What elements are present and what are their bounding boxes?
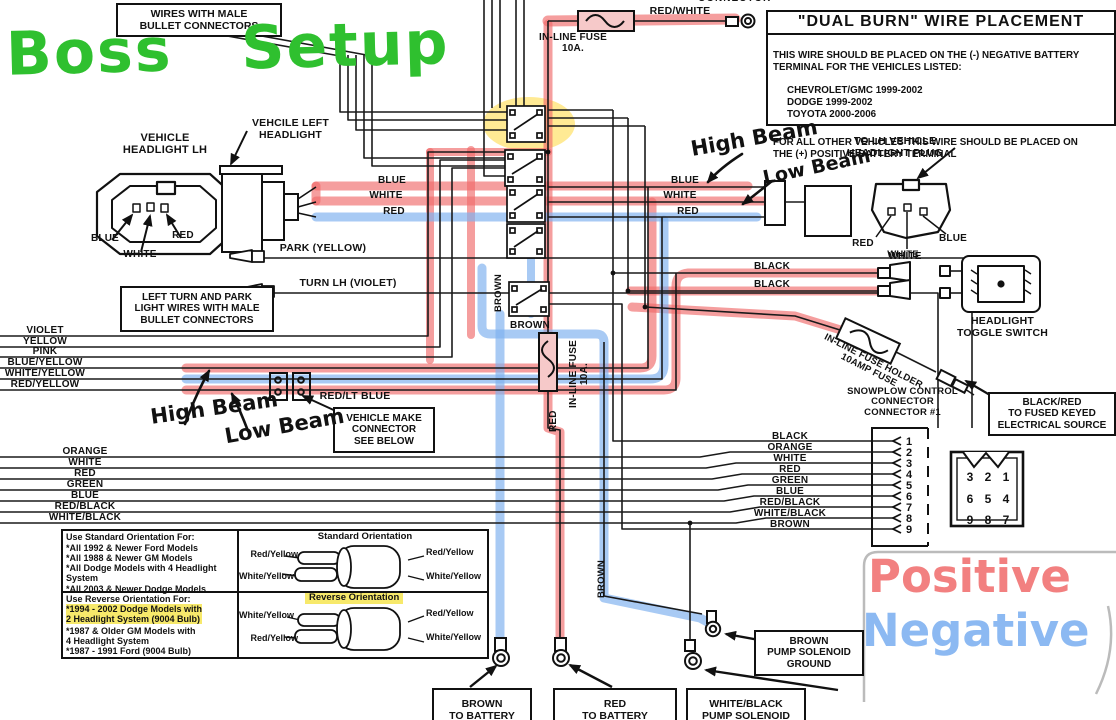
vehicle-headlight-lh-label: VEHICLE HEADLIGHT LH — [100, 132, 230, 156]
brown-horizontal-label: BROWN — [505, 320, 555, 331]
wire-red-yellow: RED/YELLOW — [0, 379, 105, 390]
bundle-right-white: WHITE — [650, 190, 710, 201]
turn-label: TURN LH (VIOLET) — [288, 278, 408, 290]
fused-source-note: BLACK/RED TO FUSED KEYED ELECTRICAL SOUR… — [988, 392, 1116, 436]
snowplow-pin-numbers: 1 2 3 4 5 6 7 8 9 — [906, 436, 913, 536]
grid-number: 8 — [985, 513, 992, 527]
vehicle-left-headlight-label: VEHCILE LEFT HEADLIGHT — [243, 118, 338, 141]
pin-label-black: BLACK — [720, 431, 860, 442]
brown-to-battery-box: BROWN TO BATTERY — [432, 688, 532, 720]
standard-orientation-items: *All 1992 & Newer Ford Models *All 1988 … — [66, 543, 217, 594]
grid-number: 7 — [1003, 513, 1010, 527]
wire-red: RED — [20, 468, 150, 479]
toggle-white-label: WHITE — [878, 250, 928, 260]
top-fuse-label: IN-LINE FUSE — [528, 32, 618, 43]
negative-annotation: Negative — [862, 604, 1090, 657]
pin-label-brown: BROWN — [720, 519, 860, 530]
grid-number: 2 — [985, 470, 992, 484]
plug-pin-red: RED — [838, 238, 888, 249]
inline-fuse-vertical-label: IN-LINE FUSE 10A. — [568, 334, 590, 414]
standard-orientation-title: Standard Orientation — [300, 532, 430, 543]
wire-pink: PINK — [0, 346, 105, 357]
plug-pigtail — [765, 181, 851, 236]
grid-number: 4 — [1003, 492, 1010, 506]
rev-right-top-label: Red/Yellow — [426, 608, 474, 618]
park-label: PARK (YELLOW) — [268, 243, 378, 255]
white-black-pump-solenoid-box: WHITE/BLACK PUMP SOLENOID — [686, 688, 806, 720]
reverse-orientation-items: *1987 & Older GM Models with 4 Headlight… — [66, 626, 196, 656]
bundle-left-red: RED — [364, 206, 424, 217]
relay-blocks — [505, 106, 549, 316]
standard-orientation-header: Use Standard Orientation For: — [66, 532, 195, 542]
lh-pin-blue: BLUE — [80, 233, 130, 244]
nine-pin-grid: 3 2 1 6 5 4 9 8 7 — [967, 470, 1010, 527]
wire-red-black: RED/BLACK — [20, 501, 150, 512]
lh-pin-white: WHITE — [115, 249, 165, 260]
snowplow-connector-title: SNOWPLOW CONTROL CONNECTOR CONNECTOR #1 — [845, 387, 960, 418]
wire-green: GREEN — [20, 479, 150, 490]
pin-number: 9 — [906, 524, 912, 536]
pin-label-blue: BLUE — [720, 486, 860, 497]
dual-burn-title: "DUAL BURN" WIRE PLACEMENT — [768, 12, 1114, 35]
std-left-top-label: Red/Yellow — [236, 549, 298, 559]
grid-number: 1 — [1003, 470, 1010, 484]
toggle-switch — [878, 256, 1040, 312]
rev-left-top-label: White/Yellow — [226, 610, 294, 620]
boss-setup-title: Boss Setup — [5, 8, 450, 90]
red-vertical-label: RED — [548, 410, 559, 432]
pin-label-white: WHITE — [720, 453, 860, 464]
headlight-toggle-switch-label: HEADLIGHT TOGGLE SWITCH — [950, 316, 1055, 339]
dual-burn-box: "DUAL BURN" WIRE PLACEMENT THIS WIRE SHO… — [766, 10, 1116, 126]
plug-pin-blue: BLUE — [928, 233, 978, 244]
wire-blue: BLUE — [20, 490, 150, 501]
wire-violet: VIOLET — [0, 325, 105, 336]
reverse-orientation-title: Reverse Orientation — [305, 593, 403, 604]
grid-number: 6 — [967, 492, 974, 506]
grid-number: 3 — [967, 470, 974, 484]
toggle-black2-label: BLACK — [742, 279, 802, 290]
pin-label-orange: ORANGE — [720, 442, 860, 453]
rev-right-bottom-label: White/Yellow — [426, 632, 481, 642]
connector-partial-label: CONNECTOR — [698, 0, 771, 5]
ring-terminal-top — [726, 15, 755, 28]
connector-partial-text: CONNECTOR — [698, 0, 771, 4]
top-inline-fuse — [578, 11, 634, 31]
bundle-right-red: RED — [658, 206, 718, 217]
grid-number: 9 — [967, 513, 974, 527]
bundle-right-blue: BLUE — [655, 175, 715, 186]
positive-annotation: Positive — [868, 550, 1071, 603]
red-white-label: RED/WHITE — [640, 6, 720, 18]
wire-orange: ORANGE — [20, 446, 150, 457]
pin-label-white-black: WHITE/BLACK — [720, 508, 860, 519]
std-right-bottom-label: White/Yellow — [426, 571, 481, 581]
reverse-orientation-highlighted-item: *1994 - 2002 Dodge Models with 2 Headlig… — [66, 604, 202, 624]
brown-vertical-label-1: BROWN — [494, 274, 504, 312]
bundle-left-white: WHITE — [356, 190, 416, 201]
pin-label-green: GREEN — [720, 475, 860, 486]
red-to-battery-box: RED TO BATTERY — [553, 688, 677, 720]
wire-white-black: WHITE/BLACK — [20, 512, 150, 523]
pin-label-red-black: RED/BLACK — [720, 497, 860, 508]
vehicle-make-connector-note: VEHICLE MAKE CONNECTOR SEE BELOW — [333, 407, 435, 453]
rev-left-bottom-label: Red/Yellow — [236, 633, 298, 643]
brown-vertical-label-2: BROWN — [597, 560, 607, 598]
lh-pin-red: RED — [158, 230, 208, 241]
pin-label-red: RED — [720, 464, 860, 475]
wire-blue-yellow: BLUE/YELLOW — [0, 357, 105, 368]
toggle-black1-label: BLACK — [742, 261, 802, 272]
std-left-bottom-label: White/Yellow — [226, 571, 294, 581]
wire-white-yellow: WHITE/YELLOW — [0, 368, 105, 379]
wiring-diagram-canvas: 1 2 3 4 5 6 7 8 9 3 2 1 6 5 4 9 8 7 — [0, 0, 1116, 720]
brown-pump-solenoid-ground-box: BROWN PUMP SOLENOID GROUND — [754, 630, 864, 676]
wire-white: WHITE — [20, 457, 150, 468]
dual-burn-intro: THIS WIRE SHOULD BE PLACED ON THE (-) NE… — [773, 50, 1109, 74]
grid-number: 5 — [985, 492, 992, 506]
red-lt-blue-label: RED/LT BLUE — [310, 391, 400, 403]
top-fuse-amps: 10A. — [528, 43, 618, 54]
reverse-orientation-header: Use Reverse Orientation For: — [66, 594, 191, 604]
dual-burn-vehicles: CHEVROLET/GMC 1999-2002 DODGE 1999-2002 … — [787, 85, 1109, 120]
vehicle-left-headlight-shape — [220, 131, 316, 252]
vertical-inline-fuse — [539, 333, 557, 391]
std-right-top-label: Red/Yellow — [426, 547, 474, 557]
bundle-left-blue: BLUE — [362, 175, 422, 186]
left-turn-park-note: LEFT TURN AND PARK LIGHT WIRES WITH MALE… — [120, 286, 274, 332]
